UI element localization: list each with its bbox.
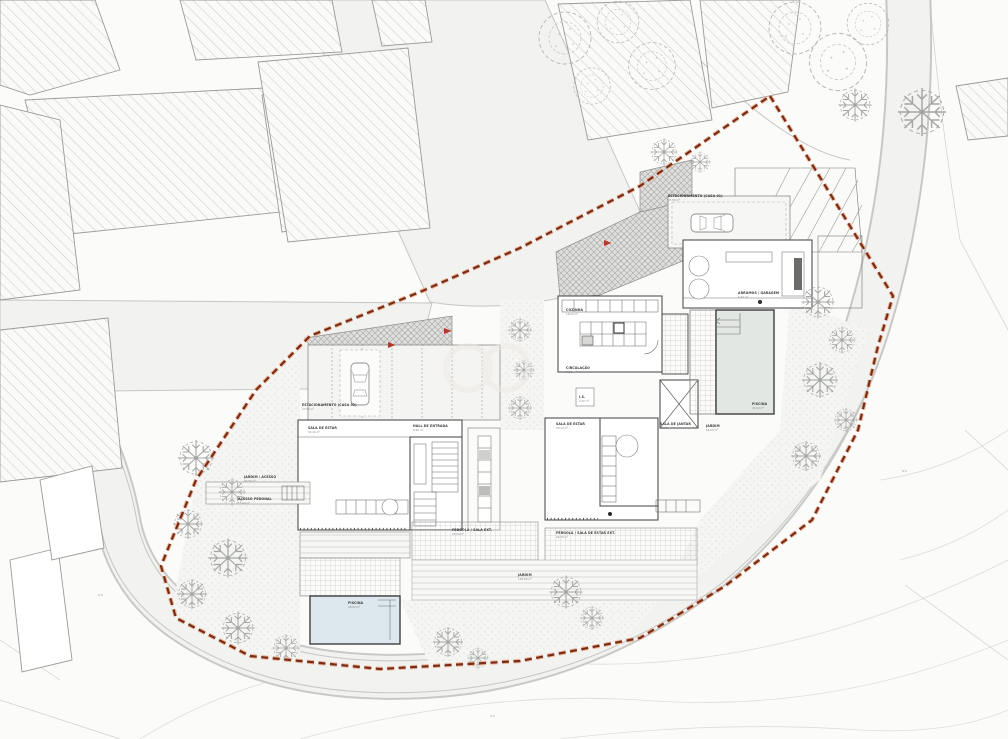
- svg-text:96.50 m²: 96.50 m²: [244, 479, 256, 483]
- svg-text:32.00 m²: 32.00 m²: [752, 406, 764, 410]
- elevation-mark-2: 9.0: [98, 593, 103, 597]
- pool-right: [690, 310, 774, 414]
- svg-text:9.80 m²: 9.80 m²: [566, 370, 577, 374]
- svg-text:15.60 m²: 15.60 m²: [238, 501, 250, 505]
- svg-text:18.20 m²: 18.20 m²: [566, 312, 578, 316]
- elevation-mark-3: 8.5: [902, 469, 907, 473]
- svg-text:27.50 m²: 27.50 m²: [668, 198, 680, 202]
- svg-text:27.50 m²: 27.50 m²: [302, 407, 314, 411]
- svg-text:118.00 m²: 118.00 m²: [518, 577, 532, 581]
- svg-text:64.00 m²: 64.00 m²: [706, 428, 718, 432]
- svg-text:24.00 m²: 24.00 m²: [452, 532, 464, 536]
- svg-text:3.20 m²: 3.20 m²: [579, 399, 590, 403]
- svg-text:16.90 m²: 16.90 m²: [660, 426, 672, 430]
- svg-text:8.60 m²: 8.60 m²: [413, 428, 424, 432]
- svg-text:28.00 m²: 28.00 m²: [348, 605, 360, 609]
- svg-text:6.40 m²: 6.40 m²: [738, 295, 749, 299]
- svg-text:26.30 m²: 26.30 m²: [556, 535, 568, 539]
- elevation-mark-1: 9.5: [490, 714, 495, 718]
- svg-text:32.40 m²: 32.40 m²: [308, 430, 320, 434]
- site-plan-drawing: ESTACIONAMENTO (CASA 01)27.50 m² ESTACIO…: [0, 0, 1008, 739]
- site-plan-canvas: ESTACIONAMENTO (CASA 01)27.50 m² ESTACIO…: [0, 0, 1008, 739]
- svg-text:30.10 m²: 30.10 m²: [556, 426, 568, 430]
